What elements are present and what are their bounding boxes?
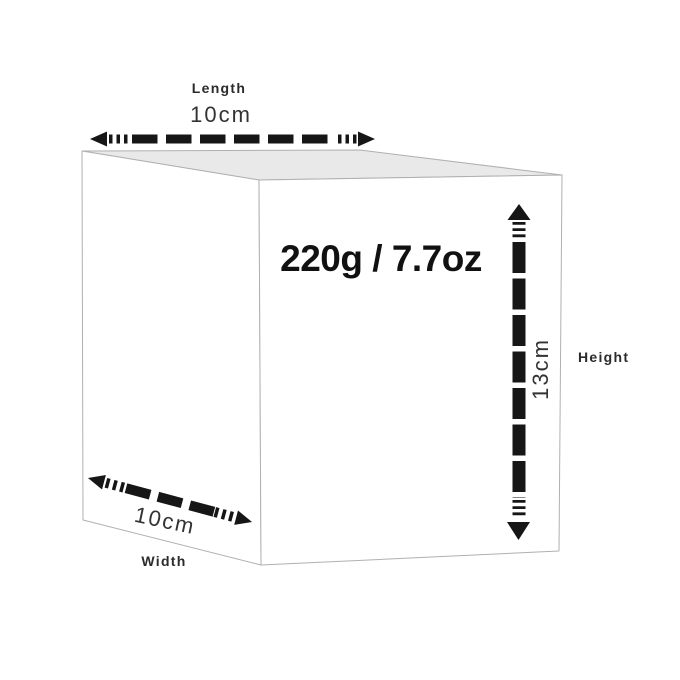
- dimension-diagram: Length 10cm 220g / 7.7oz 13cm Height 10c…: [0, 0, 680, 680]
- height-value: 13cm: [528, 338, 553, 400]
- diagram-canvas: Length 10cm 220g / 7.7oz 13cm Height 10c…: [0, 0, 680, 680]
- length-arrow-head-right: [358, 132, 375, 147]
- length-arrow-head-left: [90, 132, 107, 147]
- width-label: Width: [141, 553, 186, 569]
- length-arrow: [90, 132, 375, 147]
- product-box: [82, 150, 562, 565]
- weight-text: 220g / 7.7oz: [280, 238, 482, 279]
- height-label: Height: [578, 349, 629, 365]
- length-label: Length: [192, 80, 246, 96]
- length-value: 10cm: [190, 102, 252, 127]
